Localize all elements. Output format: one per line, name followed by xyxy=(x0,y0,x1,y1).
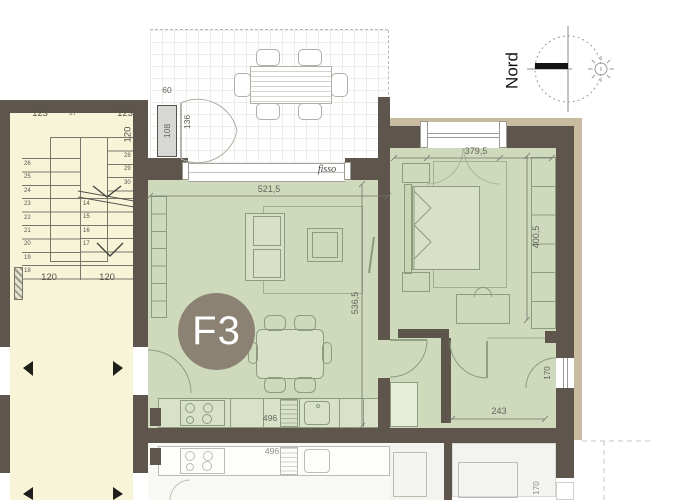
nightstand xyxy=(402,163,430,183)
dim-bedroom-width: 379,5 xyxy=(446,146,506,156)
stair-step-number: 25 xyxy=(24,171,40,184)
dim-bedroom-depth: 400,5 xyxy=(531,207,541,267)
wall xyxy=(378,378,390,428)
bed-headboard xyxy=(404,184,412,274)
wall xyxy=(556,443,574,478)
fixed-window-label: fisso xyxy=(302,165,352,175)
terrace-dashed-edge-right xyxy=(388,30,389,100)
stair-dim-bottom-right: 120 xyxy=(94,272,120,283)
wall xyxy=(0,395,10,473)
wall xyxy=(444,443,452,500)
unit-badge-label: F3 xyxy=(192,309,241,354)
stair-step-number: 23 xyxy=(24,198,40,211)
cooktop-burner xyxy=(203,403,213,413)
terrace-table xyxy=(250,66,332,104)
hall-window xyxy=(556,358,574,388)
wall-outer-band xyxy=(574,118,582,440)
nightstand xyxy=(402,272,430,292)
stair-step-number: 28 xyxy=(124,150,136,163)
terrace-chair xyxy=(331,73,348,97)
stair-upper-flight-numbers: 282930 xyxy=(124,150,136,190)
coffee-table-inner xyxy=(312,232,338,258)
wall xyxy=(556,148,574,358)
window-jamb xyxy=(420,121,428,148)
terrace-chair xyxy=(256,49,280,66)
lower-cooktop-burner xyxy=(185,451,195,461)
cooktop-burner xyxy=(185,403,195,413)
projection-dashes xyxy=(582,441,650,500)
door-gap-floor xyxy=(378,340,390,378)
sofa-cushion xyxy=(253,216,281,246)
dim-lower-kitchen: 496 xyxy=(252,446,292,456)
stair-dim-right: 120 xyxy=(123,122,134,148)
compass-north-label: Nord xyxy=(504,51,521,91)
wall xyxy=(500,126,574,148)
stair-step-number: 17 xyxy=(83,238,99,251)
wall xyxy=(133,113,148,347)
unit-badge: F3 xyxy=(178,293,255,370)
stair-step-number: 19 xyxy=(24,252,40,265)
lower-bedroom-bed xyxy=(458,462,518,498)
dim-terrace-niche: 60 xyxy=(154,85,180,95)
stair-step-number: 30 xyxy=(124,177,136,190)
desk xyxy=(456,294,510,324)
wall xyxy=(378,180,390,340)
cooktop-burner xyxy=(186,416,194,424)
terrace-chair xyxy=(298,49,322,66)
lower-hall-closet xyxy=(393,452,427,497)
wall-floor-divider xyxy=(148,428,574,443)
sofa-cushion xyxy=(253,249,281,278)
lower-cooktop-burner xyxy=(186,463,194,471)
stair-step-number: 24 xyxy=(24,185,40,198)
bed-mattress xyxy=(412,186,480,270)
window-jamb xyxy=(182,162,189,180)
stair-step-number: 21 xyxy=(24,225,40,238)
stair-step-number: 16 xyxy=(83,225,99,238)
stair-right-flight-numbers: 14151617 xyxy=(83,198,99,252)
stair-step-number: 18 xyxy=(24,265,40,278)
dining-chair xyxy=(294,377,316,393)
dining-chair xyxy=(294,315,316,331)
dim-terrace-cabinet: 108 xyxy=(162,118,172,144)
wall-column xyxy=(150,408,161,426)
wall xyxy=(378,97,390,180)
compass-graphic xyxy=(527,26,614,112)
hall-closet xyxy=(390,382,418,427)
stair-handrail-hatch xyxy=(14,267,23,300)
compass-north-bar xyxy=(535,63,568,69)
wall xyxy=(133,395,148,473)
wall xyxy=(398,329,449,338)
terrace-chair xyxy=(256,103,280,120)
dim-living-width: 521,5 xyxy=(239,184,299,194)
sink-faucet xyxy=(316,404,320,408)
dim-kitchen-length: 496 xyxy=(250,413,290,423)
stair-center-divider xyxy=(80,137,81,280)
dining-table xyxy=(256,329,324,379)
dim-living-depth: 536,5 xyxy=(350,273,360,333)
dim-terrace-door: 136 xyxy=(182,109,192,135)
cooktop-burner xyxy=(202,414,212,424)
terrace-chair xyxy=(298,103,322,120)
stair-step-number: 15 xyxy=(83,211,99,224)
dim-hall-window: 170 xyxy=(543,360,553,386)
stair-step-number: 22 xyxy=(24,212,40,225)
dim-lower-window: 170 xyxy=(532,475,542,500)
stair-step-number: 26 xyxy=(24,158,40,171)
sun-icon xyxy=(588,56,614,82)
stair-step-number: 14 xyxy=(83,198,99,211)
dining-chair xyxy=(322,342,332,364)
lower-kitchen-sink xyxy=(304,449,330,473)
wall-column xyxy=(150,448,161,465)
floor-plan: 123 27 123 120 120 120 26252423222120191… xyxy=(0,0,690,500)
wall xyxy=(545,331,556,343)
stair-dim-top-right: 123 xyxy=(112,108,138,119)
stair-step-number: 20 xyxy=(24,238,40,251)
terrace-dashed-edge-top xyxy=(150,29,388,30)
wall xyxy=(441,338,451,423)
stair-dim-top-left: 123 xyxy=(27,108,53,119)
stair-step-27: 27 xyxy=(64,109,82,119)
window-jamb xyxy=(499,121,507,148)
lower-cooktop-burner xyxy=(203,451,213,461)
dining-chair xyxy=(264,377,286,393)
terrace-chair xyxy=(234,73,251,97)
stair-step-number: 29 xyxy=(124,163,136,176)
lower-window xyxy=(556,482,574,500)
dining-chair xyxy=(264,315,286,331)
wall xyxy=(0,113,10,347)
shelf-unit xyxy=(151,196,167,318)
dim-hall-width: 243 xyxy=(469,406,529,416)
stair-left-flight-numbers: 262524232221201918 xyxy=(24,158,40,279)
bedroom-window xyxy=(427,122,500,148)
lower-cooktop-burner xyxy=(202,461,212,471)
stair-well-outline xyxy=(50,137,108,262)
